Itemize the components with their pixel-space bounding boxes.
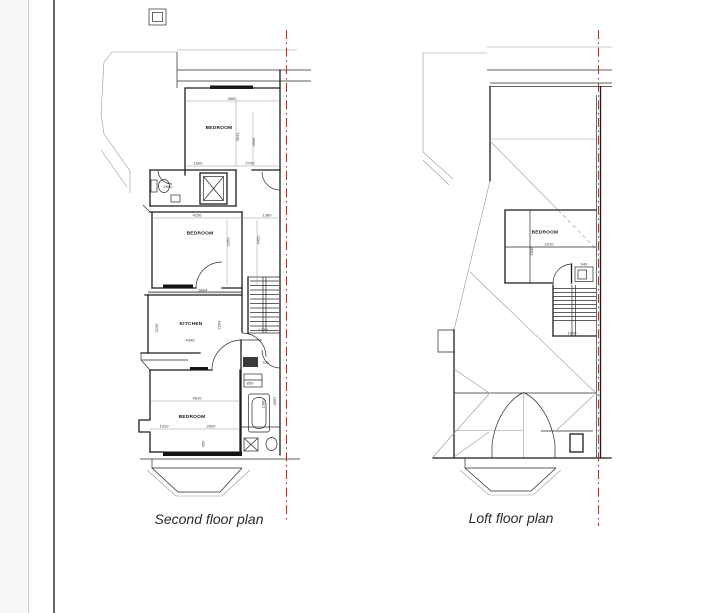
room-label-kitchen: KITCHEN: [179, 321, 202, 327]
toilet-cistern: [151, 180, 157, 192]
rooflight: [149, 9, 166, 25]
second-floor-plan-caption: Second floor plan: [155, 511, 264, 527]
party-wall-lines-loft: [487, 47, 612, 87]
dimension-labels: 4500 3531 4506 2700 1600 2660 4250 1380 …: [154, 96, 277, 447]
loft-bedroom: [505, 210, 596, 283]
dim-label: 3450: [256, 235, 261, 245]
wc-fixtures: [151, 180, 180, 203]
dim-label: 3135: [154, 323, 159, 333]
dim-label: 4345: [186, 338, 196, 343]
second-floor-plan: 4500 3531 4506 2700 1600 2660 4250 1380 …: [101, 9, 311, 527]
dim-label: 2600: [207, 424, 217, 429]
basin: [266, 438, 277, 451]
room-label-loft-bedroom: BEDROOM: [532, 230, 559, 236]
drawing-sheet: 4500 3531 4506 2700 1600 2660 4250 1380 …: [0, 0, 702, 613]
dim-label: 1800: [568, 331, 578, 336]
dim-label: 940: [581, 262, 588, 267]
room-label-bedroom-top: BEDROOM: [206, 125, 233, 131]
floor-plan-drawing: 4500 3531 4506 2700 1600 2660 4250 1380 …: [0, 0, 702, 613]
dim-label: 4587: [272, 396, 277, 406]
dim-label: 5004: [199, 288, 209, 293]
roof-plan-lower: [433, 369, 611, 458]
dim-label: 2350: [226, 237, 231, 247]
dim-label: 4500: [228, 96, 238, 101]
roof-outline: [423, 53, 601, 458]
dim-label: 4506: [251, 137, 256, 147]
dim-label: 1380: [261, 399, 266, 409]
party-wall-lines: [140, 50, 311, 459]
dim-label: 4250: [193, 213, 203, 218]
door-swing: [553, 264, 572, 283]
dim-label: 850: [247, 381, 254, 386]
dim-label: 1849: [529, 246, 534, 256]
dim-label: 700: [262, 360, 269, 365]
staircase: [248, 277, 280, 333]
chimney: [570, 434, 583, 452]
dim-label: 1030: [259, 327, 269, 332]
loft-staircase: [553, 285, 596, 336]
dim-label: 2700: [246, 161, 256, 166]
vanity-unit: [171, 195, 180, 202]
page-gutter: [0, 0, 54, 613]
dim-label: 2910: [545, 242, 555, 247]
loft-floor-plan-caption: Loft floor plan: [469, 510, 554, 526]
dim-label: 1380: [263, 213, 273, 218]
adjacent-structure-outline: [101, 9, 177, 193]
dim-label: 3531: [235, 132, 240, 142]
room-label-bedroom-middle: BEDROOM: [187, 231, 214, 237]
dim-label: 1310: [160, 424, 170, 429]
dim-label: 2660: [164, 184, 174, 189]
room-label-bedroom-bottom: BEDROOM: [179, 414, 206, 420]
lift-shaft: [200, 173, 227, 204]
bay-window: [147, 459, 250, 496]
bay-window-loft: [460, 458, 561, 495]
heater-unit: [243, 357, 258, 367]
dim-label: 1600: [194, 161, 204, 166]
dim-label: 450: [201, 440, 206, 447]
dim-label: 4810: [193, 396, 203, 401]
dim-label: 2204: [217, 320, 222, 330]
loft-floor-plan: 2910 1849 940 1800 BEDROOM Loft floor pl…: [423, 30, 612, 526]
